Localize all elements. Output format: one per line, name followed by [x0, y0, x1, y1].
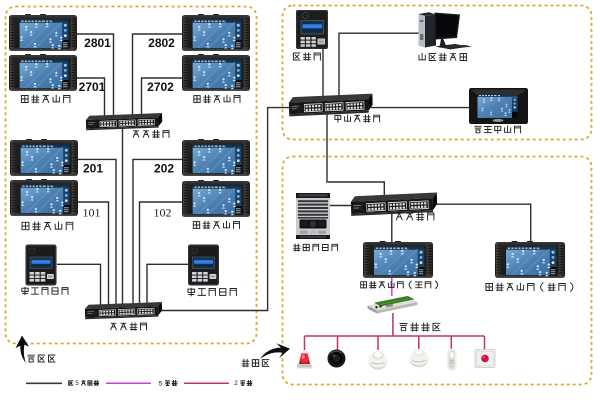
- svg-text:2: 2: [234, 380, 238, 387]
- svg-text:202: 202: [154, 161, 174, 175]
- svg-text:101: 101: [83, 206, 101, 220]
- svg-text:2802: 2802: [148, 36, 175, 50]
- svg-text:102: 102: [154, 206, 172, 220]
- svg-text:2801: 2801: [84, 36, 111, 50]
- svg-text:2702: 2702: [147, 80, 174, 94]
- svg-text:2701: 2701: [79, 80, 106, 94]
- svg-text:5: 5: [159, 380, 163, 387]
- svg-text:201: 201: [83, 161, 103, 175]
